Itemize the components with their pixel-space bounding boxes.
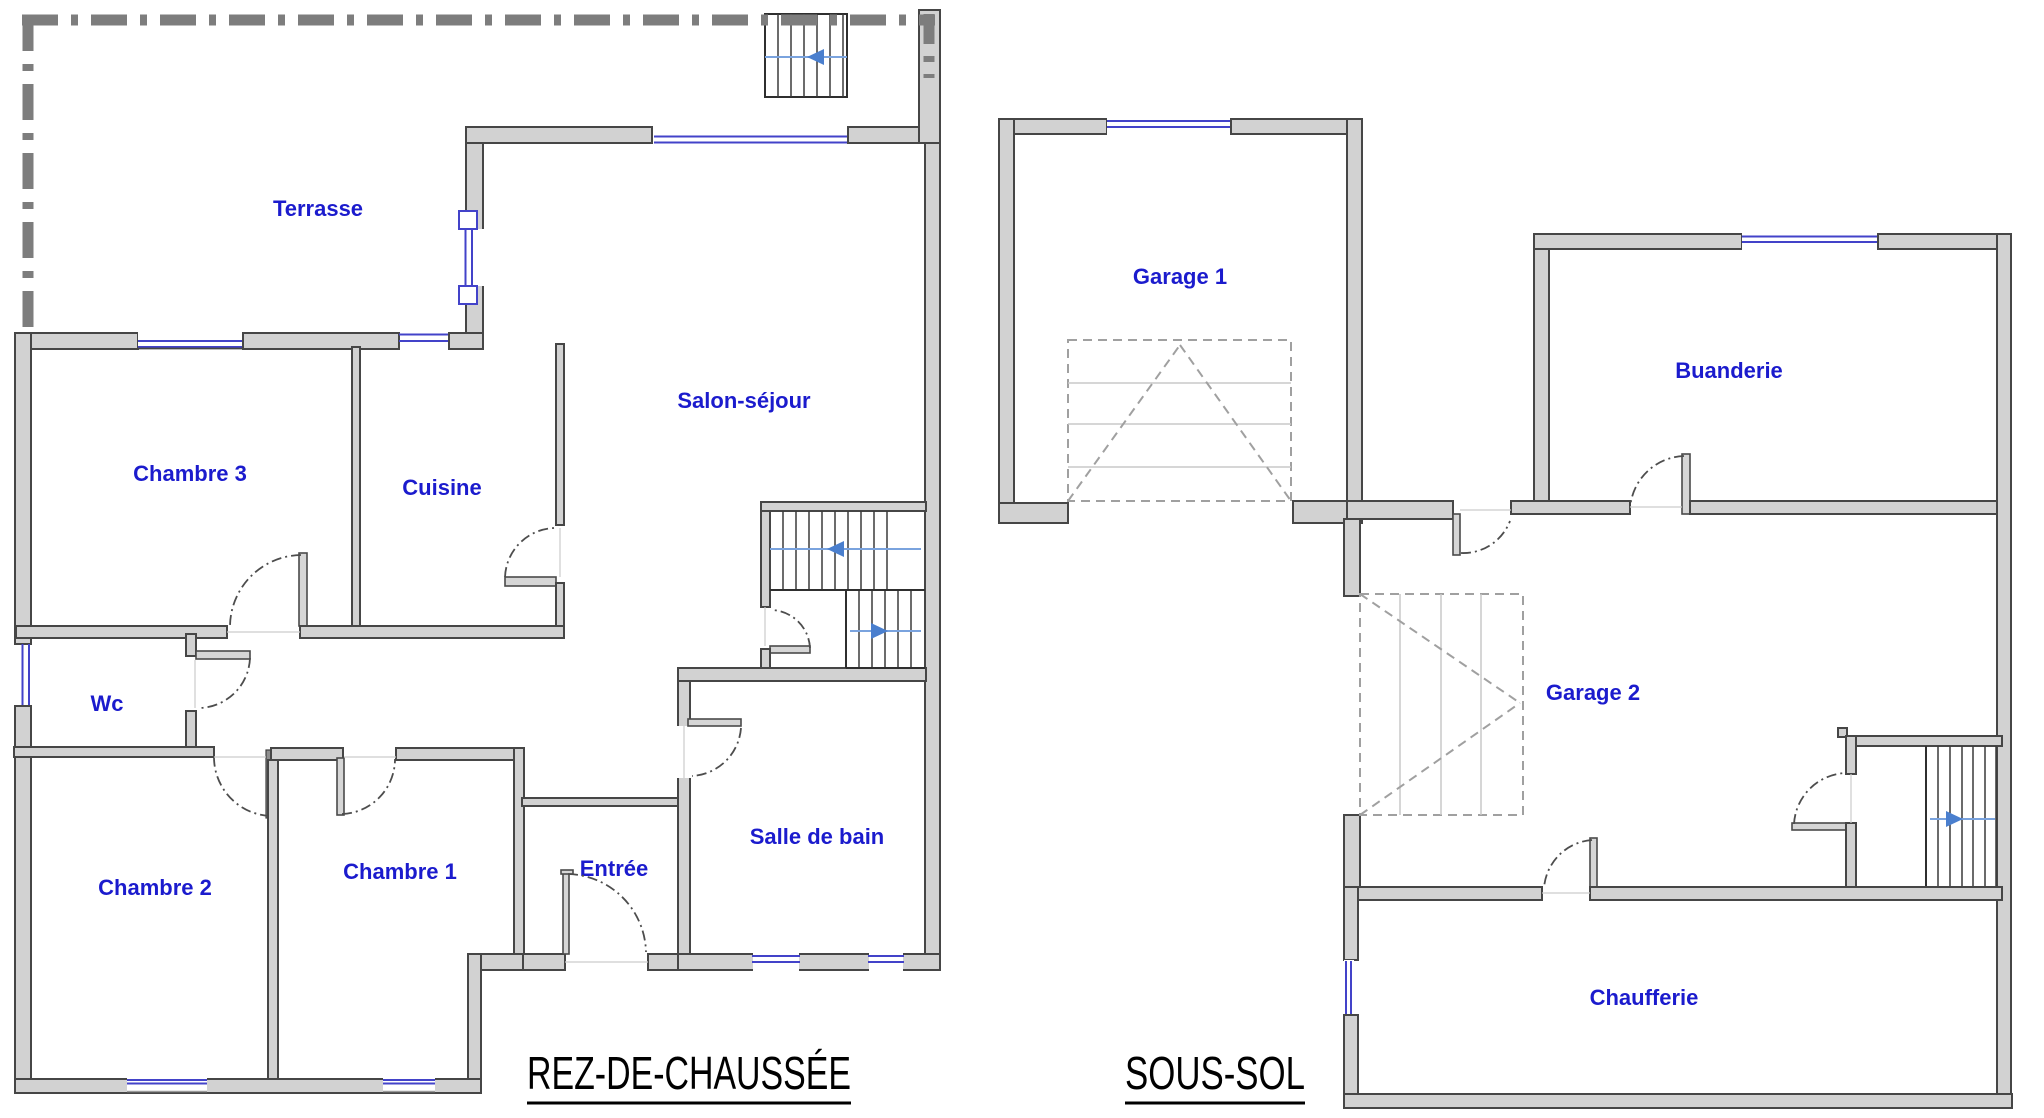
svg-text:Garage 2: Garage 2 (1546, 680, 1640, 705)
svg-text:Garage 1: Garage 1 (1133, 264, 1227, 289)
svg-text:Chaufferie: Chaufferie (1590, 985, 1699, 1010)
svg-text:Chambre 1: Chambre 1 (343, 859, 457, 884)
svg-text:Cuisine: Cuisine (402, 475, 481, 500)
svg-text:Wc: Wc (91, 691, 124, 716)
svg-text:Salle de bain: Salle de bain (750, 824, 885, 849)
svg-text:Chambre 3: Chambre 3 (133, 461, 247, 486)
svg-text:Terrasse: Terrasse (273, 196, 363, 221)
svg-text:REZ-DE-CHAUSSÉE: REZ-DE-CHAUSSÉE (527, 1047, 851, 1099)
svg-text:Chambre 2: Chambre 2 (98, 875, 212, 900)
svg-text:Salon-séjour: Salon-séjour (677, 388, 811, 413)
svg-text:SOUS-SOL: SOUS-SOL (1125, 1047, 1305, 1099)
svg-text:Buanderie: Buanderie (1675, 358, 1783, 383)
